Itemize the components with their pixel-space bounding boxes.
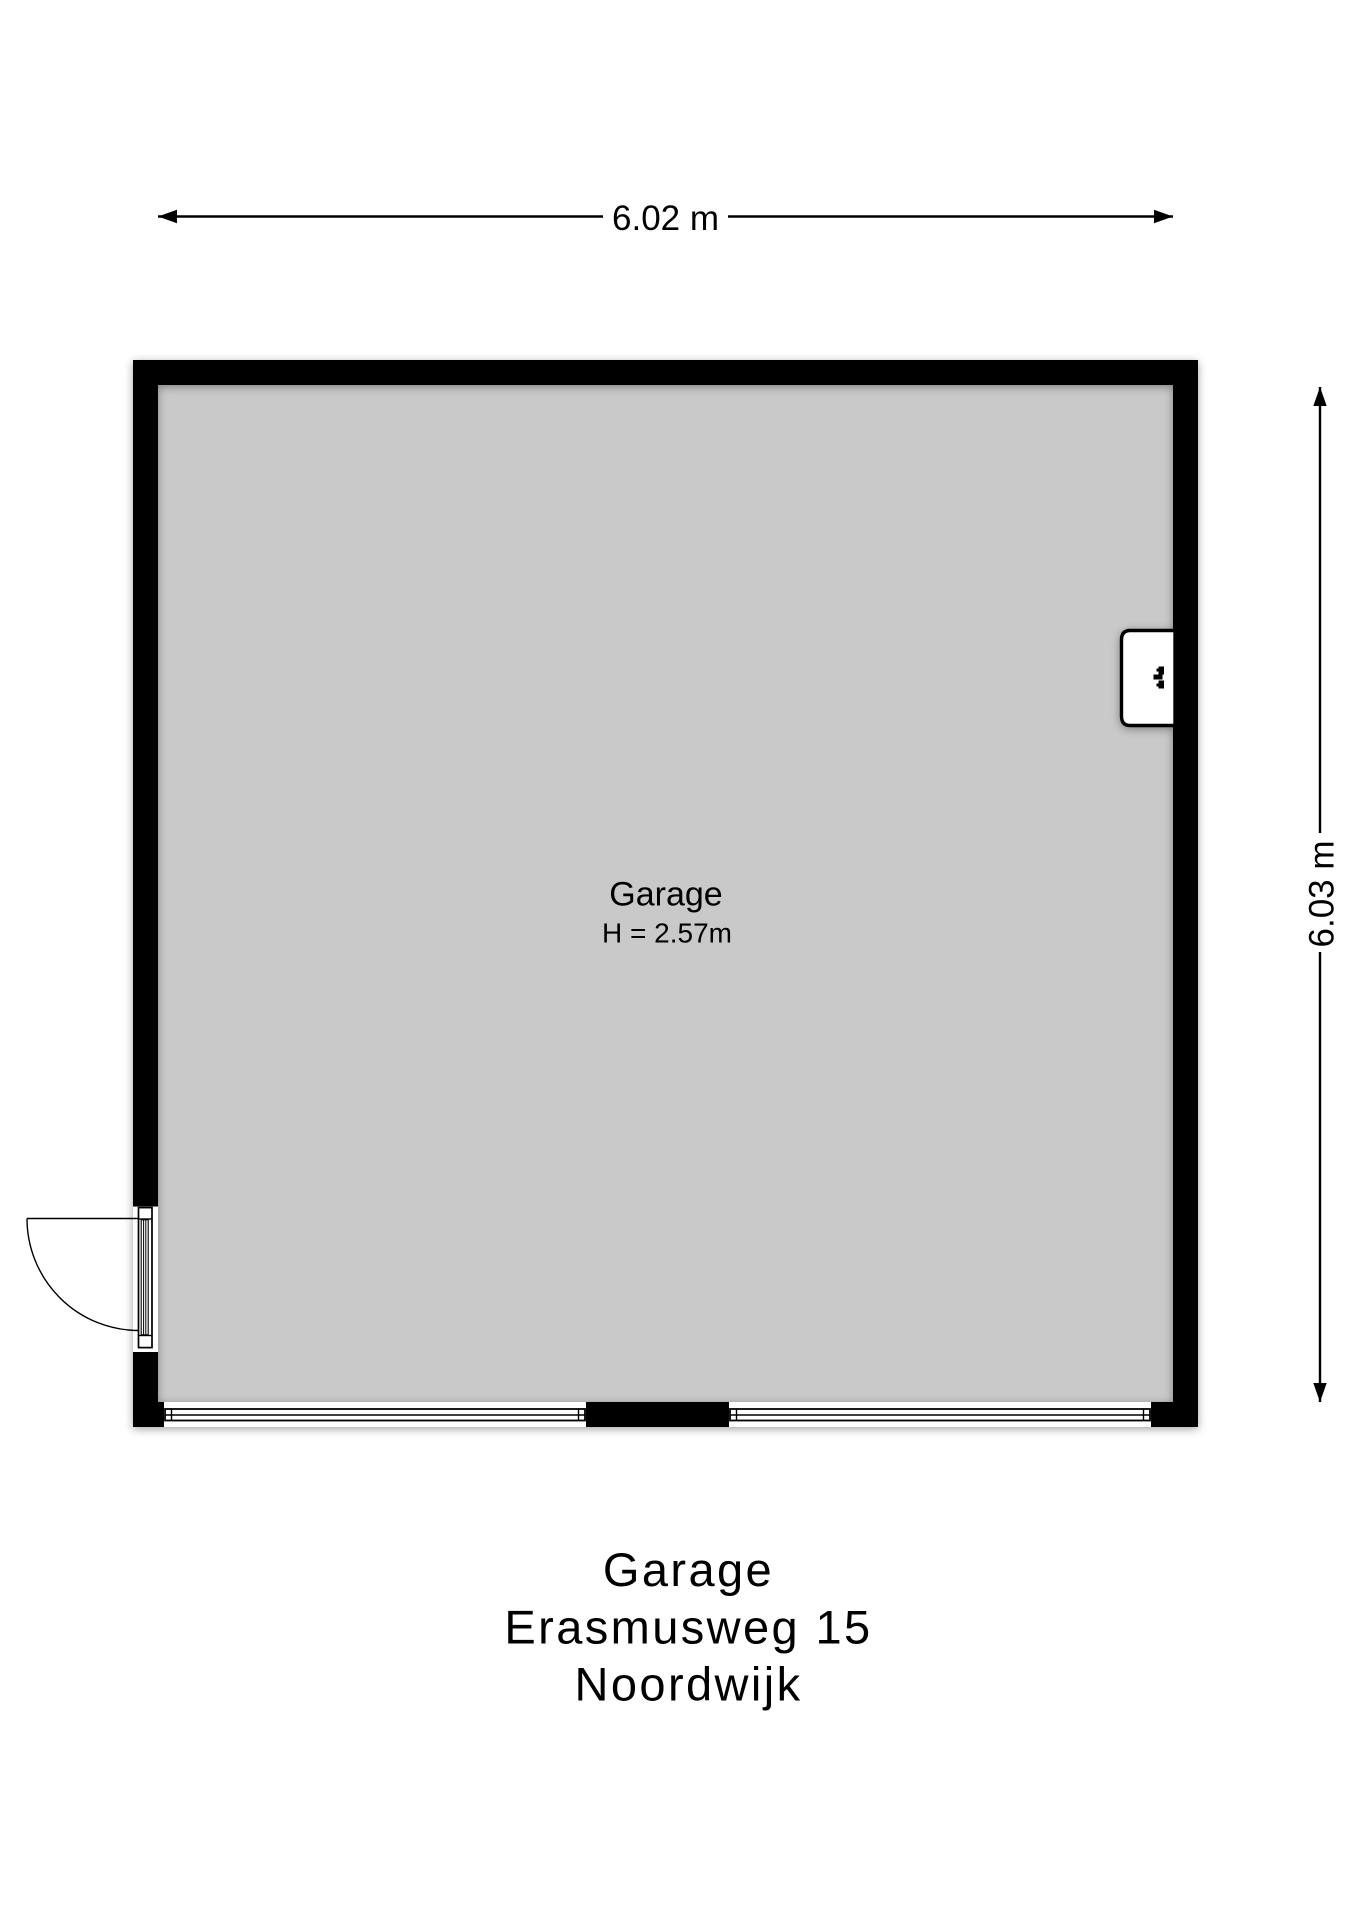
- svg-text:6.03 m: 6.03 m: [1303, 841, 1342, 948]
- svg-text:Garage: Garage: [609, 875, 722, 913]
- svg-text:Noordwijk: Noordwijk: [575, 1658, 803, 1711]
- svg-text:H = 2.57m: H = 2.57m: [602, 917, 732, 948]
- svg-text:6.02 m: 6.02 m: [612, 199, 719, 238]
- svg-text:Erasmusweg 15: Erasmusweg 15: [504, 1600, 872, 1653]
- svg-text:Garage: Garage: [603, 1543, 774, 1596]
